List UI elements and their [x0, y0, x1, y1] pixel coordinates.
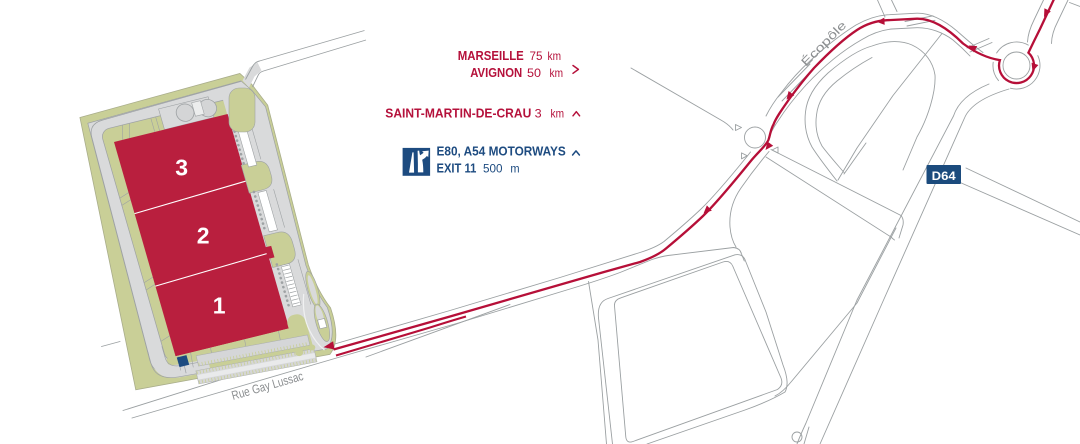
svg-text:500: 500: [483, 161, 503, 175]
svg-text:75: 75: [530, 49, 543, 63]
svg-text:SAINT-MARTIN-DE-CRAU: SAINT-MARTIN-DE-CRAU: [385, 106, 531, 120]
svg-text:E80, A54 MOTORWAYS: E80, A54 MOTORWAYS: [437, 144, 566, 158]
svg-text:3: 3: [175, 155, 188, 181]
svg-text:D64: D64: [932, 169, 956, 183]
svg-text:AVIGNON: AVIGNON: [470, 66, 522, 80]
svg-text:m: m: [510, 161, 519, 175]
svg-text:km: km: [548, 49, 562, 63]
svg-text:50: 50: [527, 66, 541, 80]
svg-text:km: km: [550, 66, 564, 80]
svg-text:EXIT 11: EXIT 11: [437, 161, 477, 175]
svg-text:km: km: [551, 106, 565, 120]
svg-text:1: 1: [213, 293, 226, 319]
svg-text:MARSEILLE: MARSEILLE: [458, 49, 524, 63]
svg-text:2: 2: [197, 222, 210, 248]
svg-text:3: 3: [535, 106, 542, 120]
